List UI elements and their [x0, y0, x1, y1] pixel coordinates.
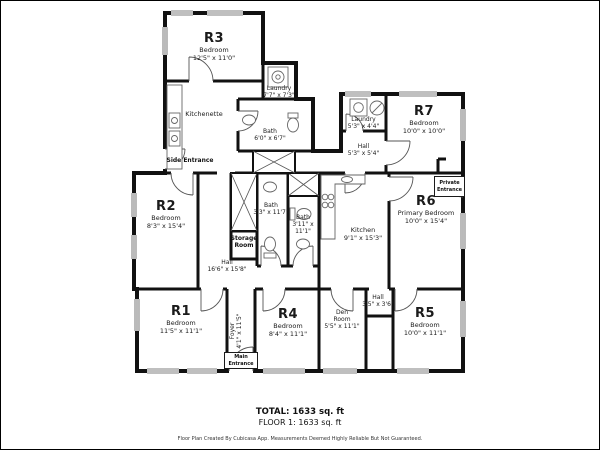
disclaimer-text: Floor Plan Created By Cubicasa App. Meas…: [1, 436, 599, 442]
washer-icon: [268, 67, 288, 87]
toilet-icon: [288, 113, 299, 132]
closet-x: [231, 173, 257, 231]
plan-footer: TOTAL: 1633 sq. ft FLOOR 1: 1633 sq. ft …: [1, 407, 599, 442]
water-heater-icon: [370, 101, 384, 115]
window: [187, 369, 217, 374]
kitchen-sink-icon: [342, 177, 353, 183]
window: [263, 369, 305, 374]
window: [163, 27, 168, 55]
window: [171, 11, 193, 16]
window: [399, 92, 437, 97]
window: [147, 369, 179, 374]
closet-x: [253, 151, 295, 173]
window: [461, 301, 466, 337]
main-entrance-label: Main Entrance: [224, 352, 258, 369]
private-entrance-label: Private Entrance: [434, 176, 465, 197]
window: [461, 213, 466, 249]
window: [461, 109, 466, 141]
side-entrance-label: Side Entrance: [159, 157, 221, 164]
washer-icon: [350, 99, 367, 116]
total-area-text: TOTAL: 1633 sq. ft: [1, 407, 599, 417]
window: [135, 299, 140, 331]
toilet-icon: [264, 237, 276, 258]
window: [323, 369, 357, 374]
floor-area-text: FLOOR 1: 1633 sq. ft: [1, 418, 599, 427]
sink-icon: [243, 115, 256, 125]
storage-room-label: Storage Room: [230, 235, 258, 249]
window: [397, 369, 429, 374]
floorplan-page: R3 Bedroom 12'5" x 11'0" Laundry 7'7" x …: [0, 0, 600, 450]
toilet-icon: [290, 208, 311, 220]
window: [207, 11, 243, 16]
window: [132, 235, 137, 259]
sink-icon: [264, 182, 277, 192]
window: [132, 193, 137, 217]
floorplan-drawing: [1, 1, 600, 450]
sink-icon: [297, 239, 310, 249]
window: [345, 92, 371, 97]
closet-x: [288, 173, 319, 196]
